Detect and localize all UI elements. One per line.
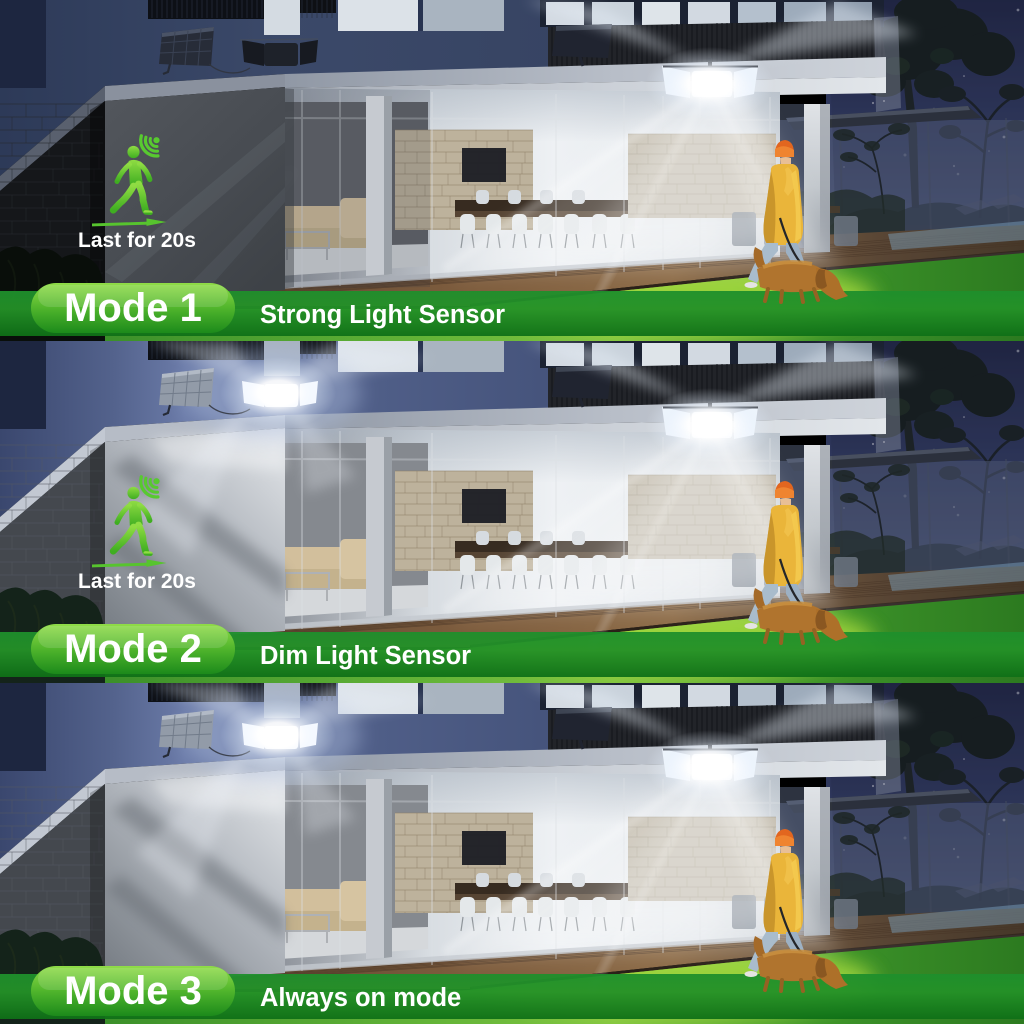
svg-text:Last for 20s: Last for 20s [78, 229, 196, 252]
svg-text:Always on mode: Always on mode [260, 984, 461, 1012]
svg-text:Dim Light Sensor: Dim Light Sensor [260, 642, 471, 670]
svg-text:Mode 3: Mode 3 [64, 969, 202, 1013]
svg-text:Mode 1: Mode 1 [64, 286, 202, 330]
svg-text:Mode 2: Mode 2 [64, 627, 202, 671]
svg-text:Last for 20s: Last for 20s [78, 570, 196, 593]
svg-text:Strong Light Sensor: Strong Light Sensor [260, 301, 505, 329]
